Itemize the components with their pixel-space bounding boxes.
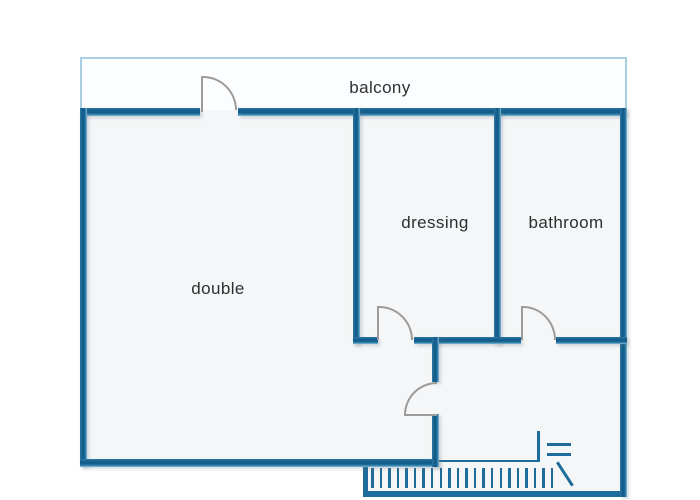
stair-tread — [397, 468, 400, 488]
wall-double-dressing — [353, 108, 360, 344]
stair-tread — [508, 468, 511, 488]
dressing-room-label: dressing — [401, 213, 468, 233]
double-room-label: double — [191, 279, 244, 299]
wall-left — [80, 108, 87, 466]
stair-edge-line — [439, 460, 538, 462]
stair-bottom-wall — [363, 491, 627, 497]
stair-tread — [448, 468, 451, 488]
wall-bathroom-south — [556, 337, 627, 344]
stair-tread — [440, 468, 443, 488]
wall-hall-upper — [432, 337, 439, 382]
stair-tread — [500, 468, 503, 488]
wall-dressing-south-right — [414, 337, 521, 344]
stair-tread — [525, 468, 528, 488]
bathroom-label: bathroom — [528, 213, 603, 233]
stair-tread — [542, 468, 545, 488]
wall-right — [620, 108, 627, 497]
stair-direction-mark-bottom — [547, 453, 571, 456]
stair-tread — [534, 468, 537, 488]
wall-top-left — [80, 108, 200, 116]
stair-tread — [414, 468, 417, 488]
stair-tread — [465, 468, 468, 488]
wall-top-right — [238, 108, 627, 116]
stair-rail-post-line — [537, 431, 540, 462]
stair-tread — [474, 468, 477, 488]
wall-dressing-bathroom — [494, 108, 501, 344]
wall-hall-lower — [432, 414, 439, 467]
stair-tread — [491, 468, 494, 488]
stair-tread — [371, 468, 374, 488]
stair-tread — [388, 468, 391, 488]
stair-tread — [551, 468, 554, 488]
stair-tread — [431, 468, 434, 488]
stair-tread — [422, 468, 425, 488]
stair-tread — [380, 468, 383, 488]
floor-plan: balcony double dressing bathroom — [0, 0, 700, 500]
stair-tread — [457, 468, 460, 488]
wall-bottom — [80, 459, 439, 467]
stair-tread — [517, 468, 520, 488]
stair-tread — [405, 468, 408, 488]
wall-dressing-south-left — [353, 337, 378, 344]
stair-tread — [482, 468, 485, 488]
stair-direction-mark-top — [547, 443, 571, 446]
stair-treads — [371, 468, 553, 488]
balcony-label: balcony — [349, 78, 410, 98]
